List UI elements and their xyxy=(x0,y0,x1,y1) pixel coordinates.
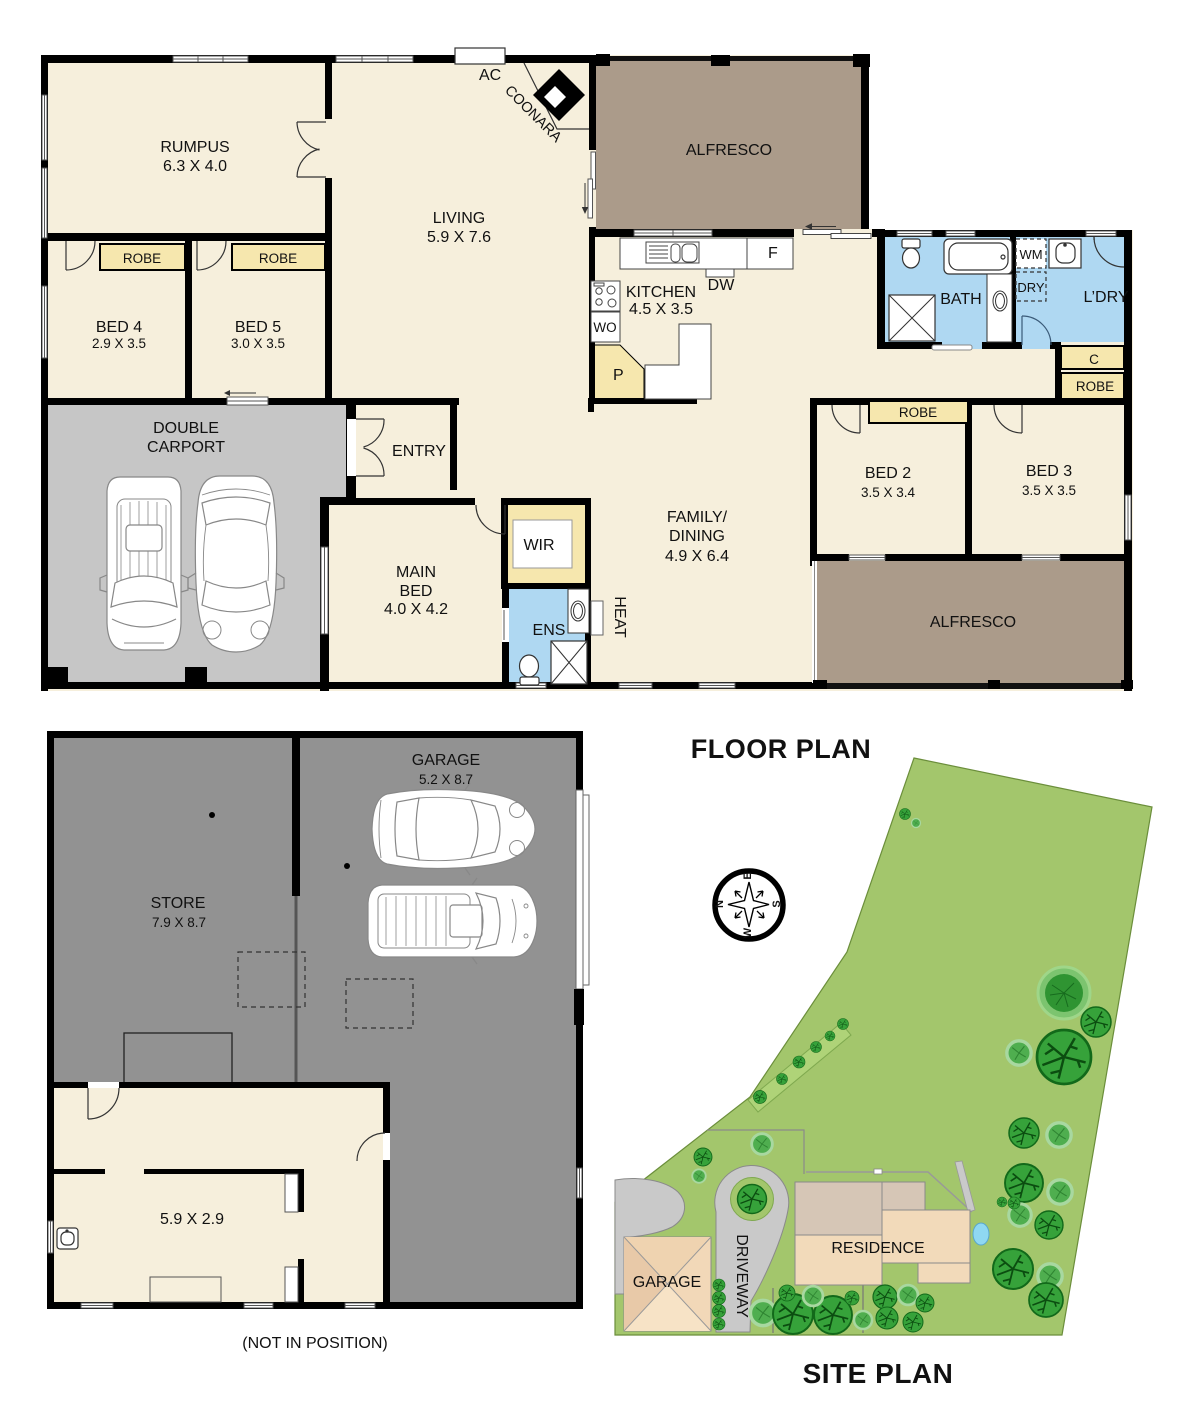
svg-text:3.5 X 3.4: 3.5 X 3.4 xyxy=(861,485,916,500)
svg-text:ENTRY: ENTRY xyxy=(392,443,446,460)
svg-text:5.2 X 8.7: 5.2 X 8.7 xyxy=(419,772,473,787)
svg-text:DW: DW xyxy=(708,277,736,294)
svg-text:C: C xyxy=(1089,352,1099,367)
svg-text:GARAGE: GARAGE xyxy=(633,1274,701,1291)
svg-text:2.9 X 3.5: 2.9 X 3.5 xyxy=(92,336,146,351)
svg-text:MAIN: MAIN xyxy=(396,564,436,581)
svg-text:ROBE: ROBE xyxy=(899,405,937,420)
svg-text:DRIVEWAY: DRIVEWAY xyxy=(733,1234,750,1318)
svg-text:4.5 X 3.5: 4.5 X 3.5 xyxy=(629,301,693,318)
svg-text:F: F xyxy=(768,245,778,262)
svg-text:ENS: ENS xyxy=(533,622,566,639)
svg-text:W: W xyxy=(742,927,754,938)
svg-text:4.0 X 4.2: 4.0 X 4.2 xyxy=(384,601,448,618)
svg-text:5.9 X 2.9: 5.9 X 2.9 xyxy=(160,1211,224,1228)
svg-text:KITCHEN: KITCHEN xyxy=(626,284,696,301)
svg-text:6.3 X 4.0: 6.3 X 4.0 xyxy=(163,158,227,175)
svg-text:DINING: DINING xyxy=(669,528,725,545)
svg-text:L’DRY: L’DRY xyxy=(1083,289,1128,306)
svg-text:3.0 X 3.5: 3.0 X 3.5 xyxy=(231,336,285,351)
svg-text:HEAT: HEAT xyxy=(611,596,628,638)
svg-text:CARPORT: CARPORT xyxy=(147,439,225,456)
svg-text:ALFRESCO: ALFRESCO xyxy=(930,614,1016,631)
svg-text:SITE PLAN: SITE PLAN xyxy=(803,1358,954,1389)
svg-text:4.9 X 6.4: 4.9 X 6.4 xyxy=(665,548,729,565)
svg-text:BED 3: BED 3 xyxy=(1026,463,1072,480)
svg-text:STORE: STORE xyxy=(151,895,206,912)
svg-text:AC: AC xyxy=(479,67,501,84)
svg-text:BED 5: BED 5 xyxy=(235,319,281,336)
svg-text:BED 4: BED 4 xyxy=(96,319,142,336)
svg-text:3.5 X 3.5: 3.5 X 3.5 xyxy=(1022,483,1076,498)
svg-text:7.9 X 8.7: 7.9 X 8.7 xyxy=(152,915,206,930)
svg-text:5.9 X 7.6: 5.9 X 7.6 xyxy=(427,229,491,246)
svg-text:P: P xyxy=(613,367,624,384)
svg-text:RUMPUS: RUMPUS xyxy=(160,139,229,156)
svg-text:WM: WM xyxy=(1019,247,1042,262)
svg-text:DOUBLE: DOUBLE xyxy=(153,420,219,437)
svg-text:FAMILY/: FAMILY/ xyxy=(667,509,728,526)
svg-text:ROBE: ROBE xyxy=(123,251,161,266)
svg-text:WO: WO xyxy=(593,320,616,335)
svg-text:LIVING: LIVING xyxy=(433,210,485,227)
svg-text:DRY: DRY xyxy=(1017,280,1045,295)
svg-text:WIR: WIR xyxy=(523,537,554,554)
svg-text:GARAGE: GARAGE xyxy=(412,752,480,769)
svg-text:RESIDENCE: RESIDENCE xyxy=(831,1240,924,1257)
svg-text:S: S xyxy=(771,900,783,907)
svg-text:E: E xyxy=(742,872,754,879)
svg-text:BED: BED xyxy=(400,583,433,600)
svg-text:ROBE: ROBE xyxy=(259,251,297,266)
svg-text:N: N xyxy=(714,900,726,908)
svg-text:BED 2: BED 2 xyxy=(865,465,911,482)
svg-text:ALFRESCO: ALFRESCO xyxy=(686,142,772,159)
svg-text:ROBE: ROBE xyxy=(1076,379,1114,394)
svg-text:FLOOR PLAN: FLOOR PLAN xyxy=(691,734,872,764)
svg-text:(NOT IN POSITION): (NOT IN POSITION) xyxy=(242,1335,387,1352)
svg-text:BATH: BATH xyxy=(940,291,981,308)
